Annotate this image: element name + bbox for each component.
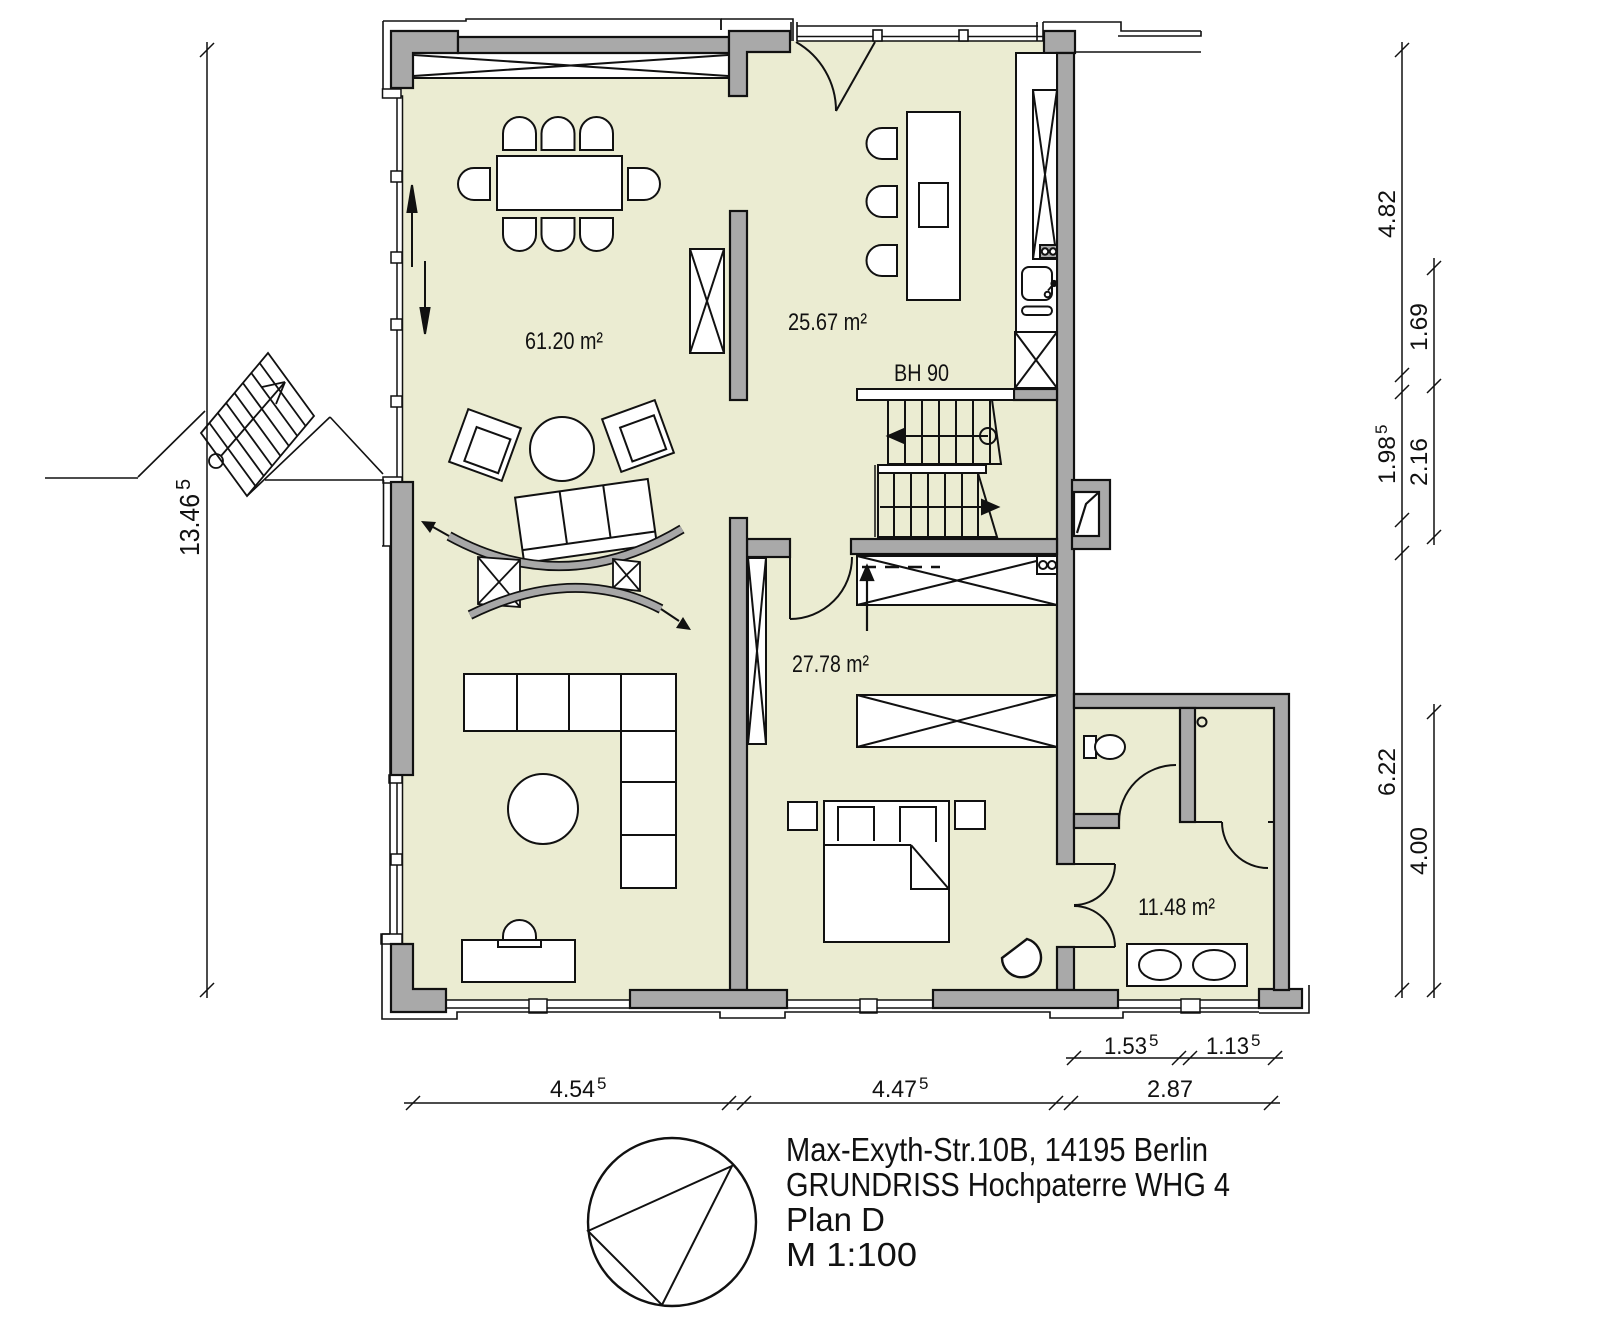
svg-text:11.48 m²: 11.48 m² [1138,894,1215,921]
svg-text:13.46: 13.46 [174,494,205,556]
svg-text:27.78 m²: 27.78 m² [792,651,869,678]
svg-text:1.53: 1.53 [1104,1033,1147,1060]
svg-text:5: 5 [597,1074,606,1093]
svg-text:61.20 m²: 61.20 m² [525,328,603,355]
svg-text:5: 5 [1149,1031,1158,1050]
svg-text:5: 5 [1372,425,1391,434]
svg-text:6.22: 6.22 [1374,748,1401,796]
svg-text:4.82: 4.82 [1374,190,1401,238]
svg-text:5: 5 [919,1074,928,1093]
svg-text:5: 5 [173,479,195,490]
svg-text:BH 90: BH 90 [894,360,949,387]
svg-text:M 1:100: M 1:100 [786,1236,917,1273]
svg-text:4.54: 4.54 [550,1076,595,1103]
svg-text:1.98: 1.98 [1374,436,1401,484]
svg-text:Plan D: Plan D [786,1201,885,1238]
svg-text:4.00: 4.00 [1406,827,1433,875]
svg-text:4.47: 4.47 [872,1076,917,1103]
svg-text:Max-Exyth-Str.10B, 14195 Berli: Max-Exyth-Str.10B, 14195 Berlin [786,1131,1208,1168]
svg-text:2.87: 2.87 [1147,1076,1193,1103]
svg-text:2.16: 2.16 [1406,438,1433,486]
svg-text:25.67 m²: 25.67 m² [788,309,867,336]
svg-text:5: 5 [1251,1031,1260,1050]
svg-text:GRUNDRISS Hochpaterre WHG 4: GRUNDRISS Hochpaterre WHG 4 [786,1166,1230,1203]
svg-text:1.69: 1.69 [1406,303,1433,351]
svg-text:1.13: 1.13 [1206,1033,1249,1060]
